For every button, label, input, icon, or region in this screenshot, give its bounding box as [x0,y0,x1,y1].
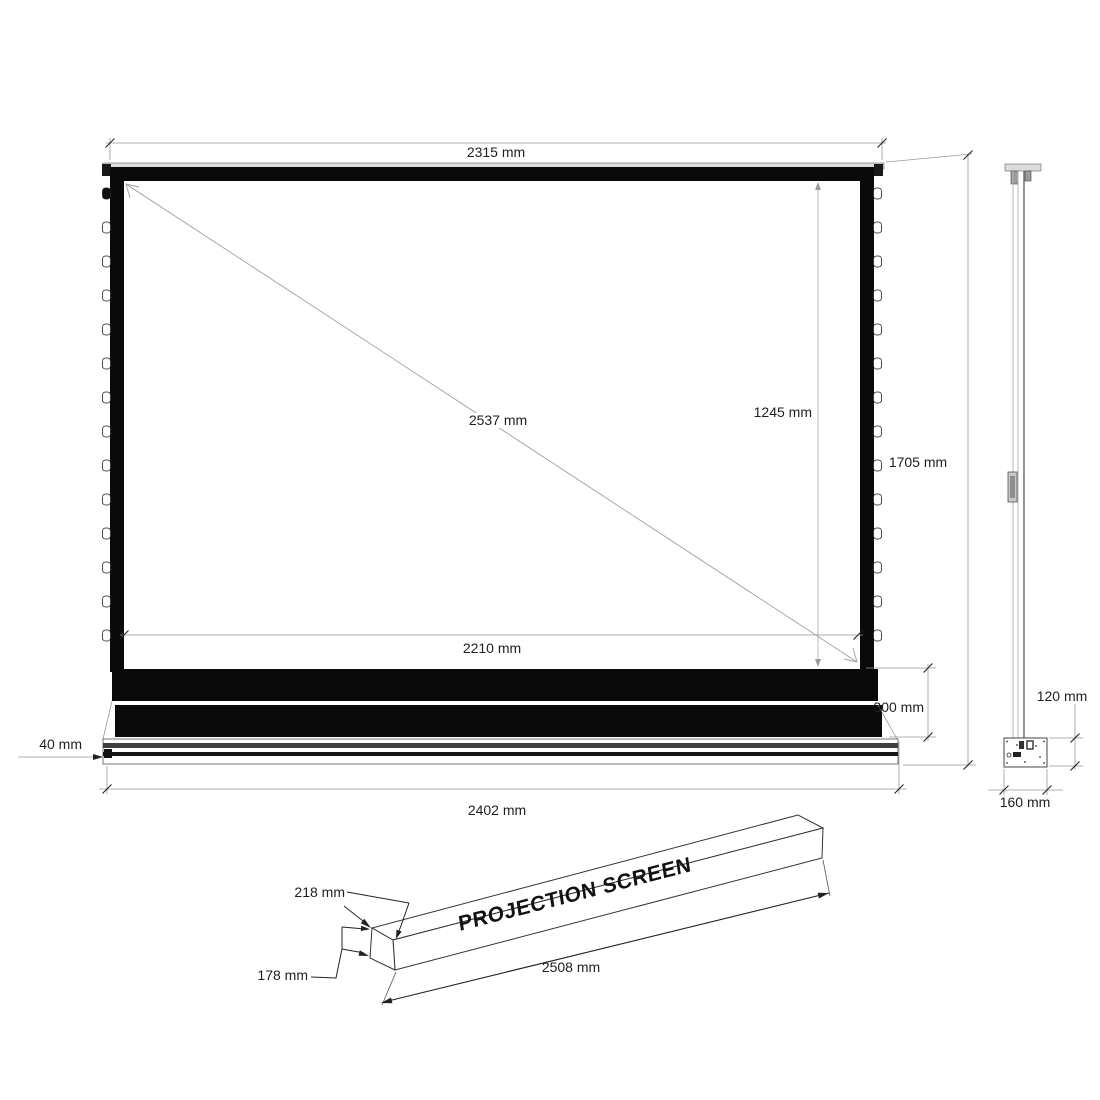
tension-tab [874,188,882,199]
dim-base-height [18,754,103,760]
right-tension-tabs [874,188,882,641]
housing-left-slant [103,701,112,739]
side-top-cap [1005,164,1041,171]
tension-tab [874,562,882,573]
dim-label-viewing-height: 1245 mm [754,405,812,420]
front-view [18,138,976,794]
tension-tab [103,392,111,403]
dim-label-base-height: 40 mm [39,737,82,752]
dim-label-viewing-width: 2210 mm [463,641,521,656]
tension-tab [874,324,882,335]
side-hook-right [1025,171,1031,181]
dim-label-upper-depth: 120 mm [1037,689,1088,704]
housing-front [115,705,882,737]
side-bracket-inner [1010,476,1015,498]
dim-label-package-length: 2508 mm [542,960,600,975]
tension-tab [103,426,111,437]
dim-label-diagonal: 2537 mm [465,413,531,428]
tension-tab [874,358,882,369]
tension-tab [874,630,882,641]
frame-top-border [110,167,874,181]
viewing-height-line [815,182,821,667]
tension-tab [103,528,111,539]
tension-tab [103,256,111,267]
tension-tab [874,222,882,233]
dim-base-depth [988,769,1063,795]
dim-label-top-width: 2315 mm [467,145,525,160]
tension-tab [874,494,882,505]
tension-tab [103,188,111,199]
dim-label-package-height: 178 mm [257,968,308,983]
tension-tab [103,494,111,505]
tension-tab [874,256,882,267]
frame-right-border [860,167,874,672]
side-hook-left [1011,171,1018,184]
tension-tab [103,630,111,641]
tension-tab [874,460,882,471]
tension-tab [103,222,111,233]
tension-tab [103,460,111,471]
tension-tab [874,528,882,539]
dim-label-package-depth: 218 mm [294,885,345,900]
projection-screen-dimension-drawing: 2315 mm 2537 mm 1245 mm 1705 mm 2210 mm … [0,0,1100,1100]
dim-label-housing-height: 300 mm [873,700,924,715]
package-view [311,815,830,1005]
floor-base [103,739,898,764]
side-base-box [1004,738,1047,767]
left-tension-tabs [103,188,111,641]
left-endcap [102,164,111,176]
right-endcap [874,164,883,176]
tension-tab [874,290,882,301]
frame-left-border [110,167,124,672]
dim-label-overall-width: 2402 mm [468,803,526,818]
drawing-svg [0,0,1100,1100]
dim-package-height [311,926,370,978]
dim-label-overall-height: 1705 mm [889,455,947,470]
tension-tab [874,392,882,403]
package-front-face [393,828,823,970]
tension-tab [103,596,111,607]
tension-tab [874,426,882,437]
bottom-mask-band [112,669,878,701]
dim-upper-depth [1049,704,1083,770]
tension-tab [103,290,111,301]
tension-tab [874,596,882,607]
tension-tab [103,562,111,573]
tension-tab [103,324,111,335]
dim-label-base-depth: 160 mm [1000,795,1051,810]
tension-tab [103,358,111,369]
